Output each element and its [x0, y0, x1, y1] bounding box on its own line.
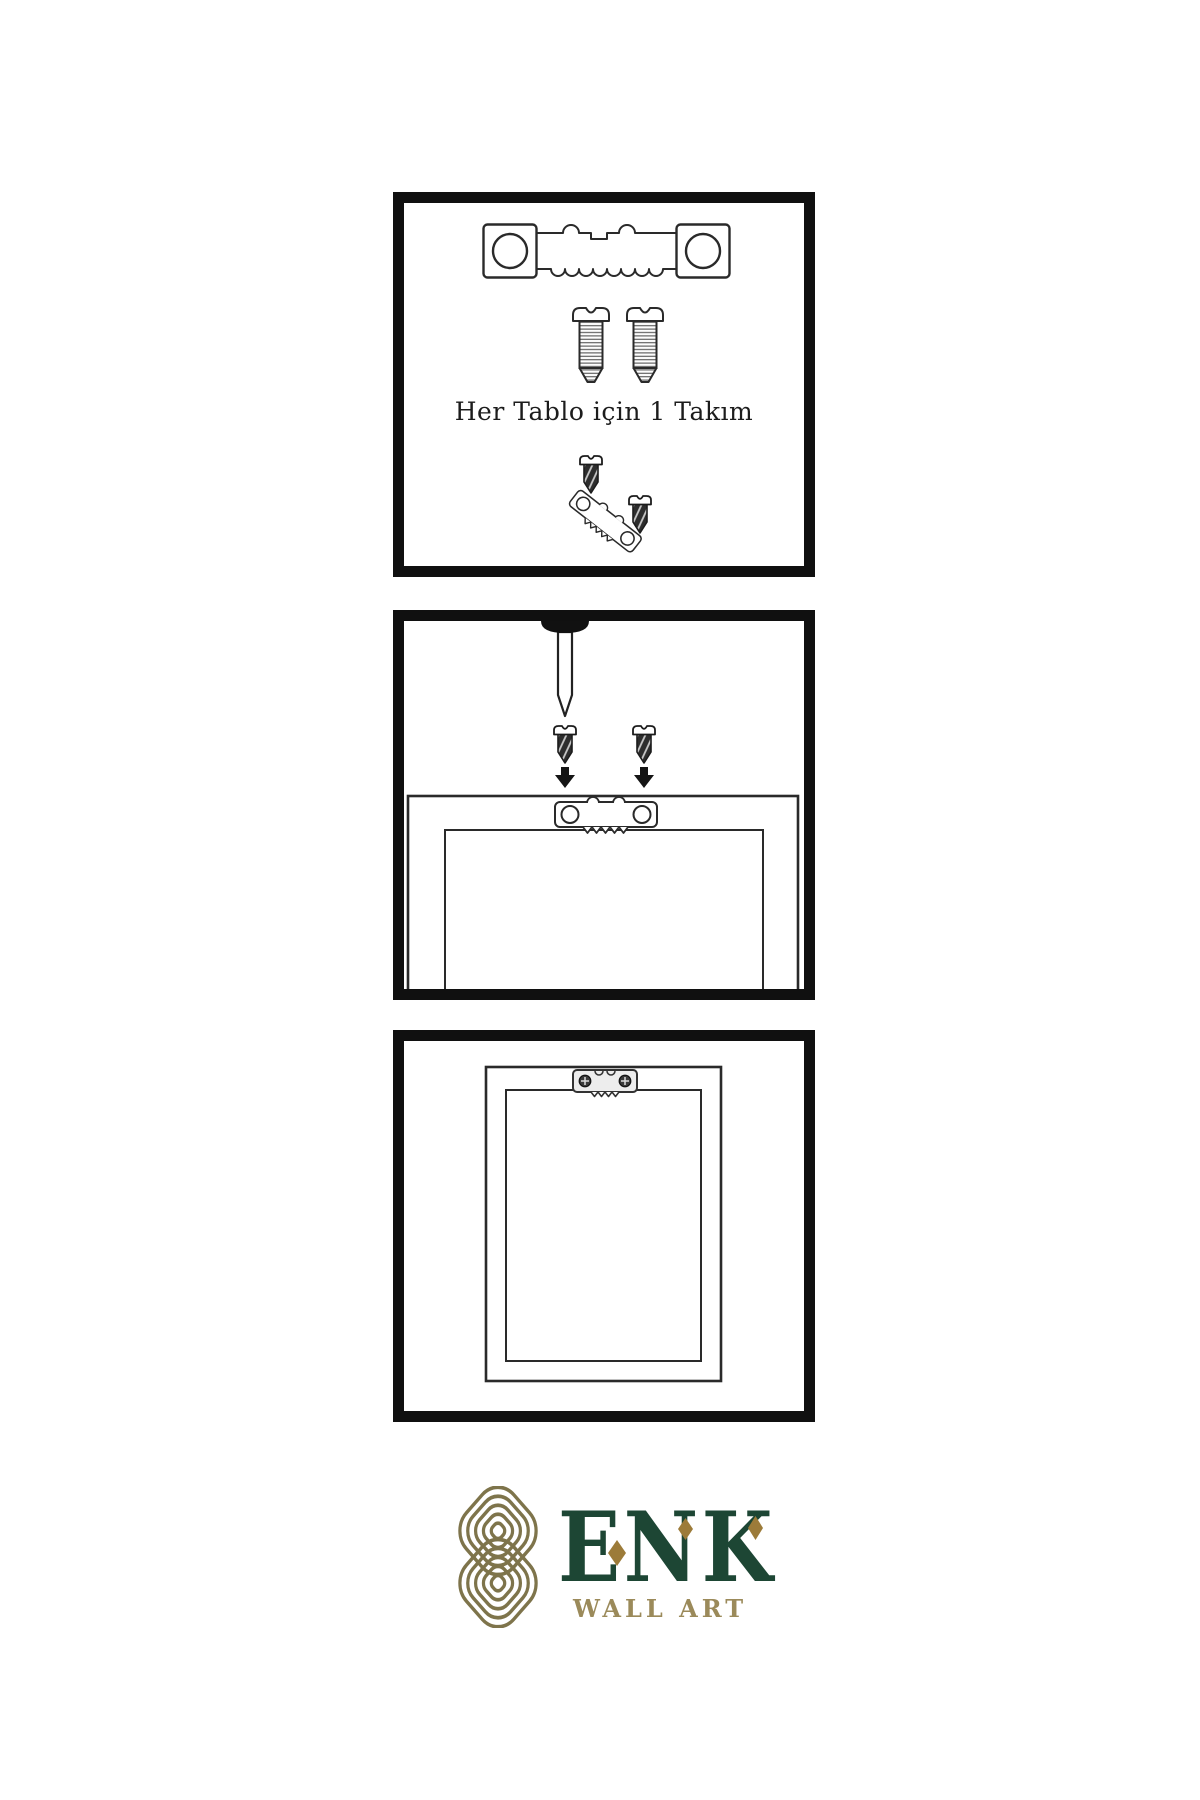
wall-nail-icon — [541, 621, 589, 716]
panel-mount-hanger-step — [393, 610, 815, 1000]
arrow-down-icon — [634, 767, 654, 788]
brand-subtitle: WALL ART — [573, 1594, 747, 1623]
mount-step-illustration — [404, 621, 804, 989]
panel-hardware-kit: Her Tablo için 1 Takım — [393, 192, 815, 577]
screw-icon — [554, 726, 576, 763]
screw-icon — [629, 496, 651, 533]
frame-back-outer — [486, 1067, 721, 1381]
hang-step-illustration — [404, 1041, 804, 1411]
knot-logo-icon — [436, 1486, 560, 1628]
mounted-sawtooth-hanger-icon — [573, 1070, 637, 1097]
sawtooth-hanger-icon — [555, 797, 657, 833]
screw-icon — [580, 456, 602, 493]
hardware-kit-illustration — [404, 203, 804, 566]
knot-loop-a — [451, 1486, 546, 1585]
screw-icon — [573, 308, 609, 382]
panel-hang-frame-step — [393, 1030, 815, 1422]
frame-back-inner — [445, 830, 763, 989]
instruction-sheet: { "meta": { "type": "wall-art-hanging-in… — [0, 0, 1200, 1800]
screw-icon — [627, 308, 663, 382]
brand-logo: ENK WALL ART — [420, 1470, 820, 1660]
screw-icon — [633, 726, 655, 763]
screw-into-hanger-icon — [565, 456, 651, 557]
knot-loop-b — [451, 1529, 546, 1628]
brand-wordmark: ENK — [558, 1500, 776, 1596]
kit-caption: Her Tablo için 1 Takım — [404, 397, 804, 426]
arrow-down-icon — [555, 767, 575, 788]
sawtooth-hanger-icon — [484, 225, 730, 278]
